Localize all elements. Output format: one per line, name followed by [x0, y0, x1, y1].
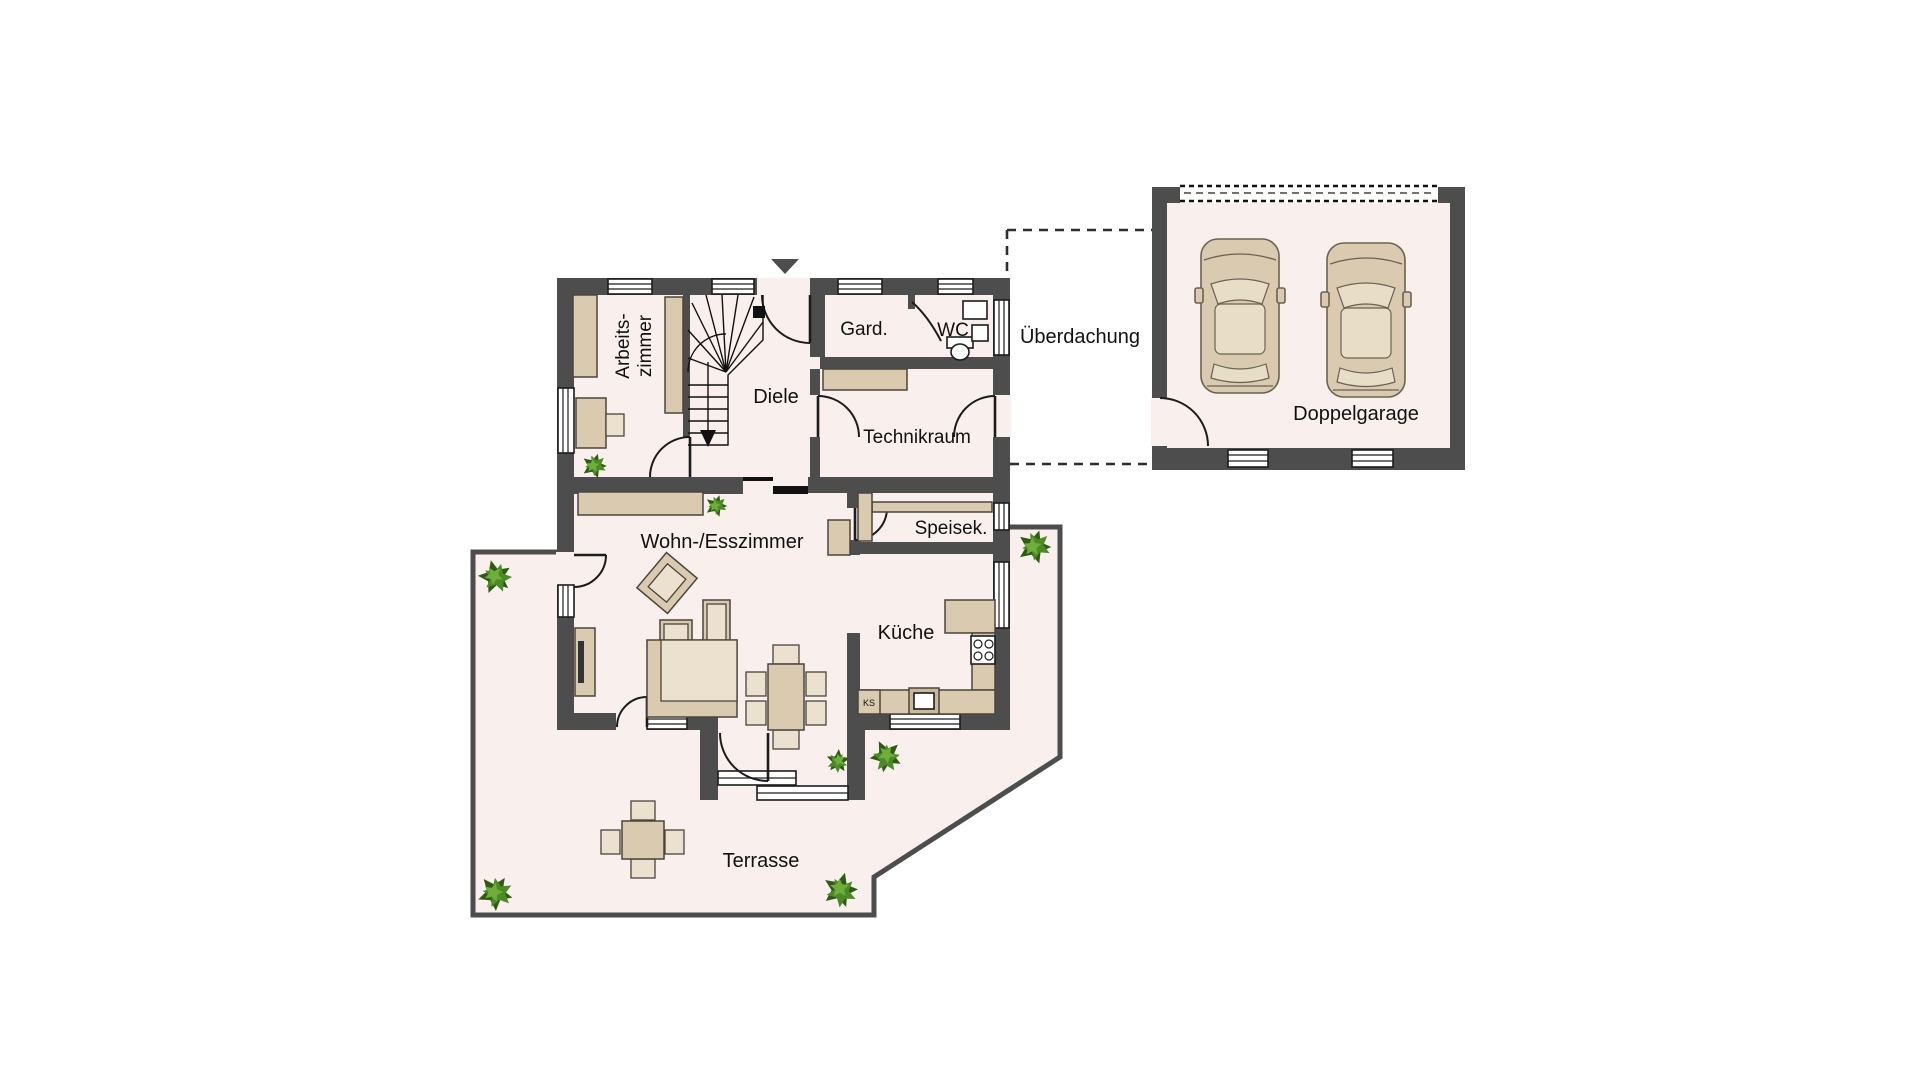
- window: [938, 279, 973, 294]
- window: [608, 279, 652, 294]
- window: [558, 388, 574, 453]
- room-label-speisekammer: Speisek.: [915, 518, 988, 539]
- stove: [971, 636, 995, 664]
- window: [1352, 450, 1393, 467]
- desk: [576, 398, 606, 448]
- floor-plan-canvas: Arbeits- zimmer Diele Gard. WC Technikra…: [0, 0, 1920, 1080]
- garage-floor: [1152, 187, 1465, 470]
- room-label-technikraum: Technikraum: [863, 427, 971, 448]
- room-label-terrasse: Terrasse: [723, 850, 800, 872]
- room-label-wc: WC: [937, 320, 969, 341]
- svg-text:Arbeits-: Arbeits-: [613, 313, 634, 378]
- room-label-kueche: Küche: [878, 622, 935, 644]
- window: [994, 300, 1009, 355]
- pantry-shelf: [858, 493, 872, 541]
- room-label-garderobe: Gard.: [840, 319, 888, 340]
- window: [838, 279, 882, 294]
- tv: [578, 641, 584, 683]
- label-fridge-ks: KS: [863, 698, 875, 708]
- room-label-ueberdachung: Überdachung: [1020, 326, 1140, 348]
- svg-text:zimmer: zimmer: [635, 314, 656, 377]
- window: [558, 585, 574, 617]
- room-label-arbeitszimmer: Arbeits- zimmer: [613, 313, 656, 378]
- floor-plan-drawing: Arbeits- zimmer Diele Gard. WC Technikra…: [0, 0, 1920, 1080]
- wardrobe-shelf: [823, 369, 907, 390]
- window: [890, 714, 960, 729]
- room-label-wohn-esszimmer: Wohn-/Esszimmer: [641, 531, 804, 553]
- car-icon: [1195, 239, 1285, 393]
- sideboard: [578, 492, 703, 515]
- room-label-doppelgarage: Doppelgarage: [1293, 403, 1419, 425]
- upper-house-floor: [557, 278, 1010, 490]
- bookshelf: [573, 295, 597, 377]
- window: [994, 503, 1009, 530]
- kitchen-sink: [909, 688, 939, 714]
- wc-appliance: [972, 325, 988, 341]
- pantry-shelf: [872, 502, 992, 512]
- room-label-diele: Diele: [753, 386, 799, 408]
- entrance-arrow-icon: [771, 259, 799, 274]
- window: [712, 279, 754, 294]
- window: [1228, 450, 1268, 467]
- bookshelf: [665, 297, 683, 413]
- window: [994, 562, 1009, 628]
- armchair: [828, 520, 850, 555]
- car-icon: [1321, 243, 1411, 397]
- wc-sink: [963, 301, 987, 319]
- garage-door: [1180, 184, 1438, 203]
- desk-chair: [606, 414, 624, 436]
